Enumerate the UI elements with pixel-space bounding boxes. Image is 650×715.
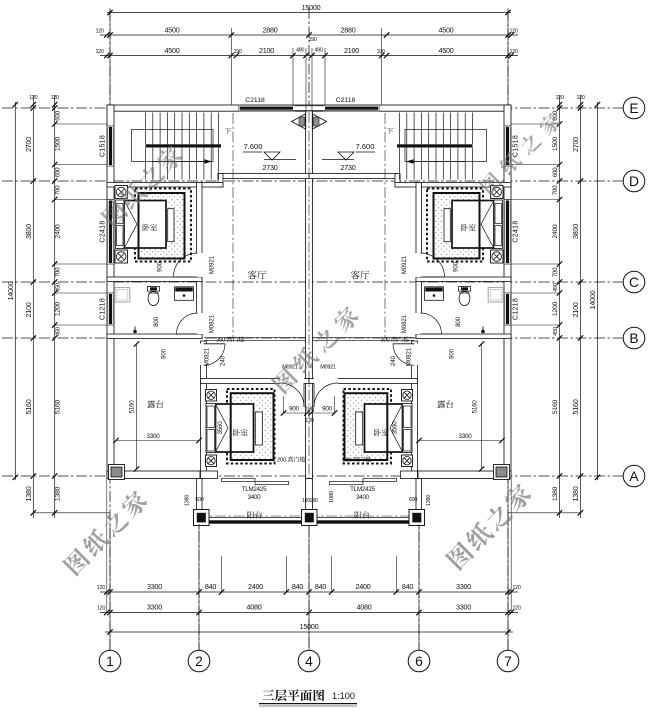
- svg-text:800: 800: [455, 316, 462, 327]
- svg-text:6: 6: [415, 654, 423, 669]
- svg-text:450: 450: [553, 283, 559, 292]
- svg-text:180: 180: [310, 498, 318, 504]
- svg-text:300: 300: [216, 338, 225, 344]
- svg-text:M0821: M0821: [205, 347, 211, 366]
- svg-text:600: 600: [195, 497, 203, 503]
- svg-text:490: 490: [314, 48, 322, 54]
- svg-text:900: 900: [450, 348, 456, 359]
- svg-text:1080: 1080: [329, 491, 335, 503]
- svg-text:4500: 4500: [165, 46, 180, 55]
- svg-text:3560: 3560: [392, 421, 399, 435]
- svg-text:D: D: [629, 174, 639, 189]
- svg-text:4500: 4500: [165, 26, 180, 35]
- svg-text:4500: 4500: [439, 46, 454, 55]
- svg-text:C1218: C1218: [513, 298, 520, 320]
- svg-text:1500: 1500: [552, 136, 559, 151]
- svg-text:700: 700: [552, 267, 559, 277]
- svg-text:2880: 2880: [341, 26, 356, 35]
- svg-text:3800: 3800: [24, 224, 33, 239]
- svg-text:M0821: M0821: [210, 314, 216, 333]
- svg-text:2100: 2100: [24, 302, 33, 317]
- svg-text:M0921: M0921: [320, 365, 336, 371]
- svg-text:3300: 3300: [458, 433, 472, 440]
- svg-text:120: 120: [576, 95, 584, 101]
- svg-text:1500: 1500: [55, 136, 62, 151]
- svg-text:2400: 2400: [356, 582, 371, 591]
- svg-text:800: 800: [153, 316, 160, 327]
- svg-text:C2118: C2118: [336, 97, 356, 104]
- svg-text:120: 120: [95, 49, 103, 55]
- svg-text:4080: 4080: [357, 603, 372, 612]
- svg-text:C: C: [629, 275, 639, 290]
- svg-text:4500: 4500: [439, 26, 454, 35]
- svg-text:120: 120: [29, 95, 37, 101]
- svg-text:1200: 1200: [55, 301, 62, 316]
- svg-text:2700: 2700: [571, 137, 580, 152]
- svg-text:2700: 2700: [24, 137, 33, 152]
- svg-text:3300: 3300: [147, 603, 162, 612]
- svg-text:7.600: 7.600: [244, 142, 263, 151]
- svg-text:2400: 2400: [552, 224, 559, 239]
- svg-text:1380: 1380: [24, 486, 33, 501]
- svg-text:600: 600: [55, 167, 62, 177]
- svg-text:4: 4: [305, 654, 313, 669]
- svg-text:600: 600: [55, 110, 62, 120]
- svg-text:2400: 2400: [55, 224, 62, 239]
- svg-text:15000: 15000: [302, 3, 321, 12]
- svg-text:5160: 5160: [472, 400, 479, 414]
- svg-text:200: 200: [277, 458, 286, 464]
- svg-text:M0921: M0921: [402, 255, 408, 274]
- svg-text:3800: 3800: [571, 224, 580, 239]
- svg-text:450: 450: [56, 283, 62, 292]
- svg-text:900: 900: [454, 261, 460, 272]
- svg-text:2100: 2100: [259, 46, 274, 55]
- svg-text:840: 840: [315, 582, 326, 591]
- svg-text:5160: 5160: [55, 399, 62, 414]
- svg-text:200: 200: [343, 458, 352, 464]
- svg-text:C1218: C1218: [100, 298, 107, 320]
- svg-text:C1518: C1518: [513, 135, 520, 157]
- svg-text:C2418: C2418: [513, 220, 520, 242]
- svg-text:1380: 1380: [185, 495, 191, 507]
- svg-text:5160: 5160: [129, 400, 136, 414]
- svg-text:M0921: M0921: [210, 255, 216, 274]
- svg-text:450: 450: [56, 327, 62, 336]
- svg-text:900: 900: [158, 261, 164, 272]
- svg-text:450: 450: [553, 327, 559, 336]
- svg-text:120: 120: [512, 585, 520, 591]
- svg-text:1: 1: [106, 654, 114, 669]
- svg-text:C2118: C2118: [245, 97, 265, 104]
- svg-text:120: 120: [555, 95, 563, 101]
- svg-text:2880: 2880: [263, 26, 278, 35]
- svg-text:900: 900: [289, 406, 300, 413]
- svg-text:240: 240: [221, 355, 227, 366]
- svg-text:TLM2425: TLM2425: [242, 486, 267, 493]
- svg-text:3400: 3400: [248, 494, 262, 501]
- svg-text:840: 840: [402, 582, 413, 591]
- svg-text:4080: 4080: [247, 603, 262, 612]
- svg-text:300: 300: [381, 338, 390, 344]
- svg-text:2100: 2100: [571, 302, 580, 317]
- svg-text:840: 840: [292, 582, 303, 591]
- svg-text:190: 190: [308, 37, 316, 43]
- svg-text:5160: 5160: [552, 399, 559, 414]
- svg-text:120: 120: [51, 95, 59, 101]
- svg-text:1380: 1380: [571, 486, 580, 501]
- svg-text:1380: 1380: [552, 486, 559, 501]
- svg-text:900: 900: [322, 406, 333, 413]
- svg-text:3300: 3300: [146, 433, 160, 440]
- svg-text:2: 2: [195, 654, 203, 669]
- svg-text:120: 120: [97, 606, 105, 612]
- svg-text:M0821: M0821: [402, 314, 408, 333]
- svg-text:14000: 14000: [588, 290, 597, 309]
- svg-text:TLM2425: TLM2425: [350, 486, 375, 493]
- svg-text:1380: 1380: [55, 486, 62, 501]
- svg-text:14000: 14000: [6, 281, 15, 300]
- svg-text:B: B: [629, 331, 638, 346]
- svg-text:7.600: 7.600: [356, 142, 375, 151]
- svg-text:5160: 5160: [24, 399, 33, 414]
- svg-text:600: 600: [409, 497, 417, 503]
- svg-text:700: 700: [55, 267, 62, 277]
- svg-text:240: 240: [391, 355, 397, 366]
- svg-text:3300: 3300: [147, 582, 162, 591]
- svg-text:2730: 2730: [341, 163, 356, 172]
- svg-text:120: 120: [509, 29, 517, 35]
- svg-text:2400: 2400: [248, 582, 263, 591]
- svg-text:190: 190: [233, 49, 241, 55]
- svg-text:900: 900: [162, 348, 168, 359]
- svg-text:1200: 1200: [552, 301, 559, 316]
- svg-text:700: 700: [552, 185, 559, 195]
- svg-text:120: 120: [512, 606, 520, 612]
- svg-text:120: 120: [305, 418, 314, 424]
- svg-text:120: 120: [95, 29, 103, 35]
- svg-text:120: 120: [97, 585, 105, 591]
- svg-text:700: 700: [55, 185, 62, 195]
- svg-text:2100: 2100: [344, 46, 359, 55]
- svg-text:M0821: M0821: [407, 347, 413, 366]
- svg-text:120: 120: [509, 49, 517, 55]
- svg-text:2730: 2730: [263, 163, 278, 172]
- svg-text:7: 7: [504, 654, 512, 669]
- svg-text:C1518: C1518: [100, 135, 107, 157]
- svg-text:3300: 3300: [456, 603, 471, 612]
- svg-text:1:100: 1:100: [332, 691, 355, 701]
- svg-text:5160: 5160: [571, 399, 580, 414]
- svg-text:3560: 3560: [217, 421, 224, 435]
- svg-text:C2418: C2418: [100, 220, 107, 242]
- svg-text:1380: 1380: [426, 495, 432, 507]
- svg-text:600: 600: [552, 167, 559, 177]
- svg-text:490: 490: [296, 48, 304, 54]
- svg-text:E: E: [629, 101, 638, 116]
- svg-text:A: A: [629, 469, 639, 484]
- svg-text:3400: 3400: [356, 494, 370, 501]
- svg-text:840: 840: [205, 582, 216, 591]
- svg-text:190: 190: [376, 49, 384, 55]
- svg-text:3300: 3300: [456, 582, 471, 591]
